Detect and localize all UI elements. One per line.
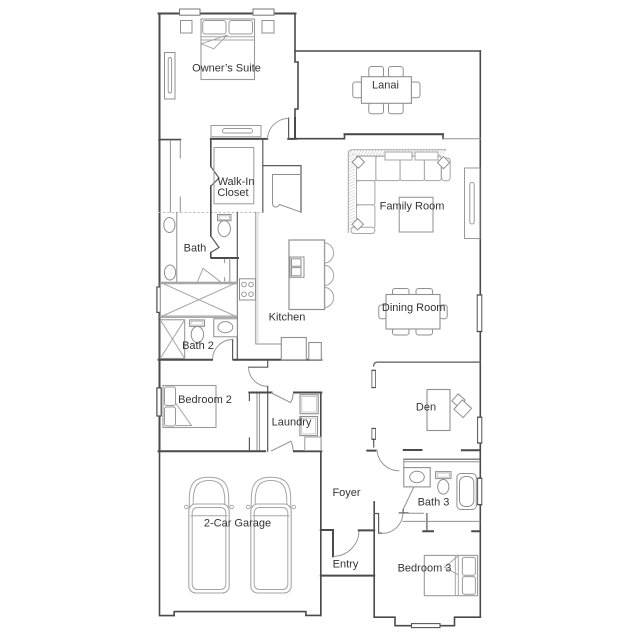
svg-text:Bedroom 3: Bedroom 3	[398, 563, 452, 575]
svg-text:Bath 2: Bath 2	[182, 340, 214, 352]
svg-text:Foyer: Foyer	[332, 487, 360, 499]
svg-text:Laundry: Laundry	[272, 417, 312, 429]
svg-text:2-Car Garage: 2-Car Garage	[204, 518, 271, 530]
svg-text:Bath: Bath	[184, 243, 207, 255]
svg-text:Dining Room: Dining Room	[382, 302, 446, 314]
svg-text:Closet: Closet	[217, 187, 248, 199]
svg-text:Owner’s Suite: Owner’s Suite	[192, 63, 261, 75]
svg-text:Entry: Entry	[333, 559, 359, 571]
svg-text:Lanai: Lanai	[372, 80, 399, 92]
svg-text:Den: Den	[416, 402, 436, 414]
svg-text:Bath 3: Bath 3	[418, 497, 450, 509]
svg-text:Kitchen: Kitchen	[269, 312, 306, 324]
svg-text:Family Room: Family Room	[380, 201, 445, 213]
svg-text:Bedroom 2: Bedroom 2	[178, 394, 232, 406]
